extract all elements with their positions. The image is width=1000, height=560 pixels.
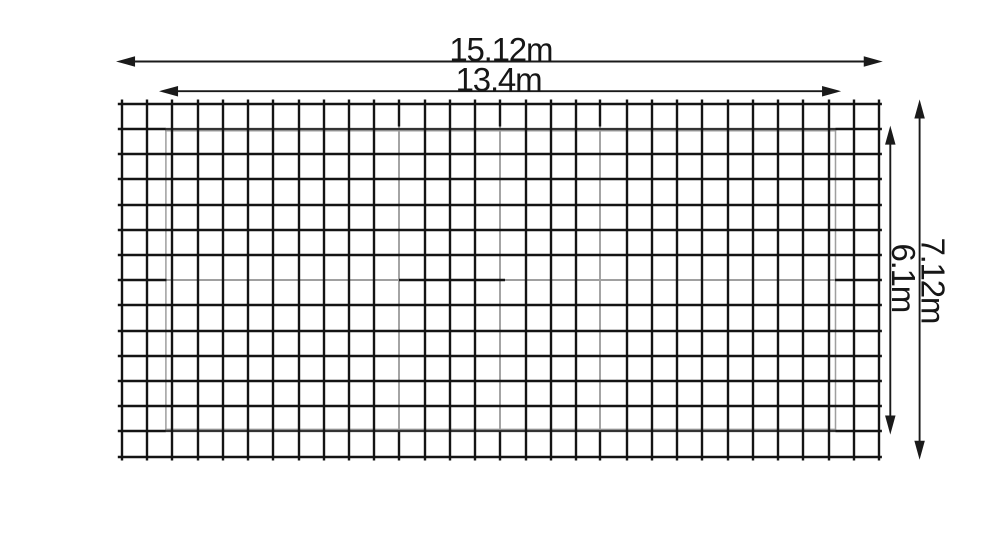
svg-text:6.1m: 6.1m bbox=[885, 244, 922, 313]
svg-text:13.4m: 13.4m bbox=[456, 61, 542, 98]
